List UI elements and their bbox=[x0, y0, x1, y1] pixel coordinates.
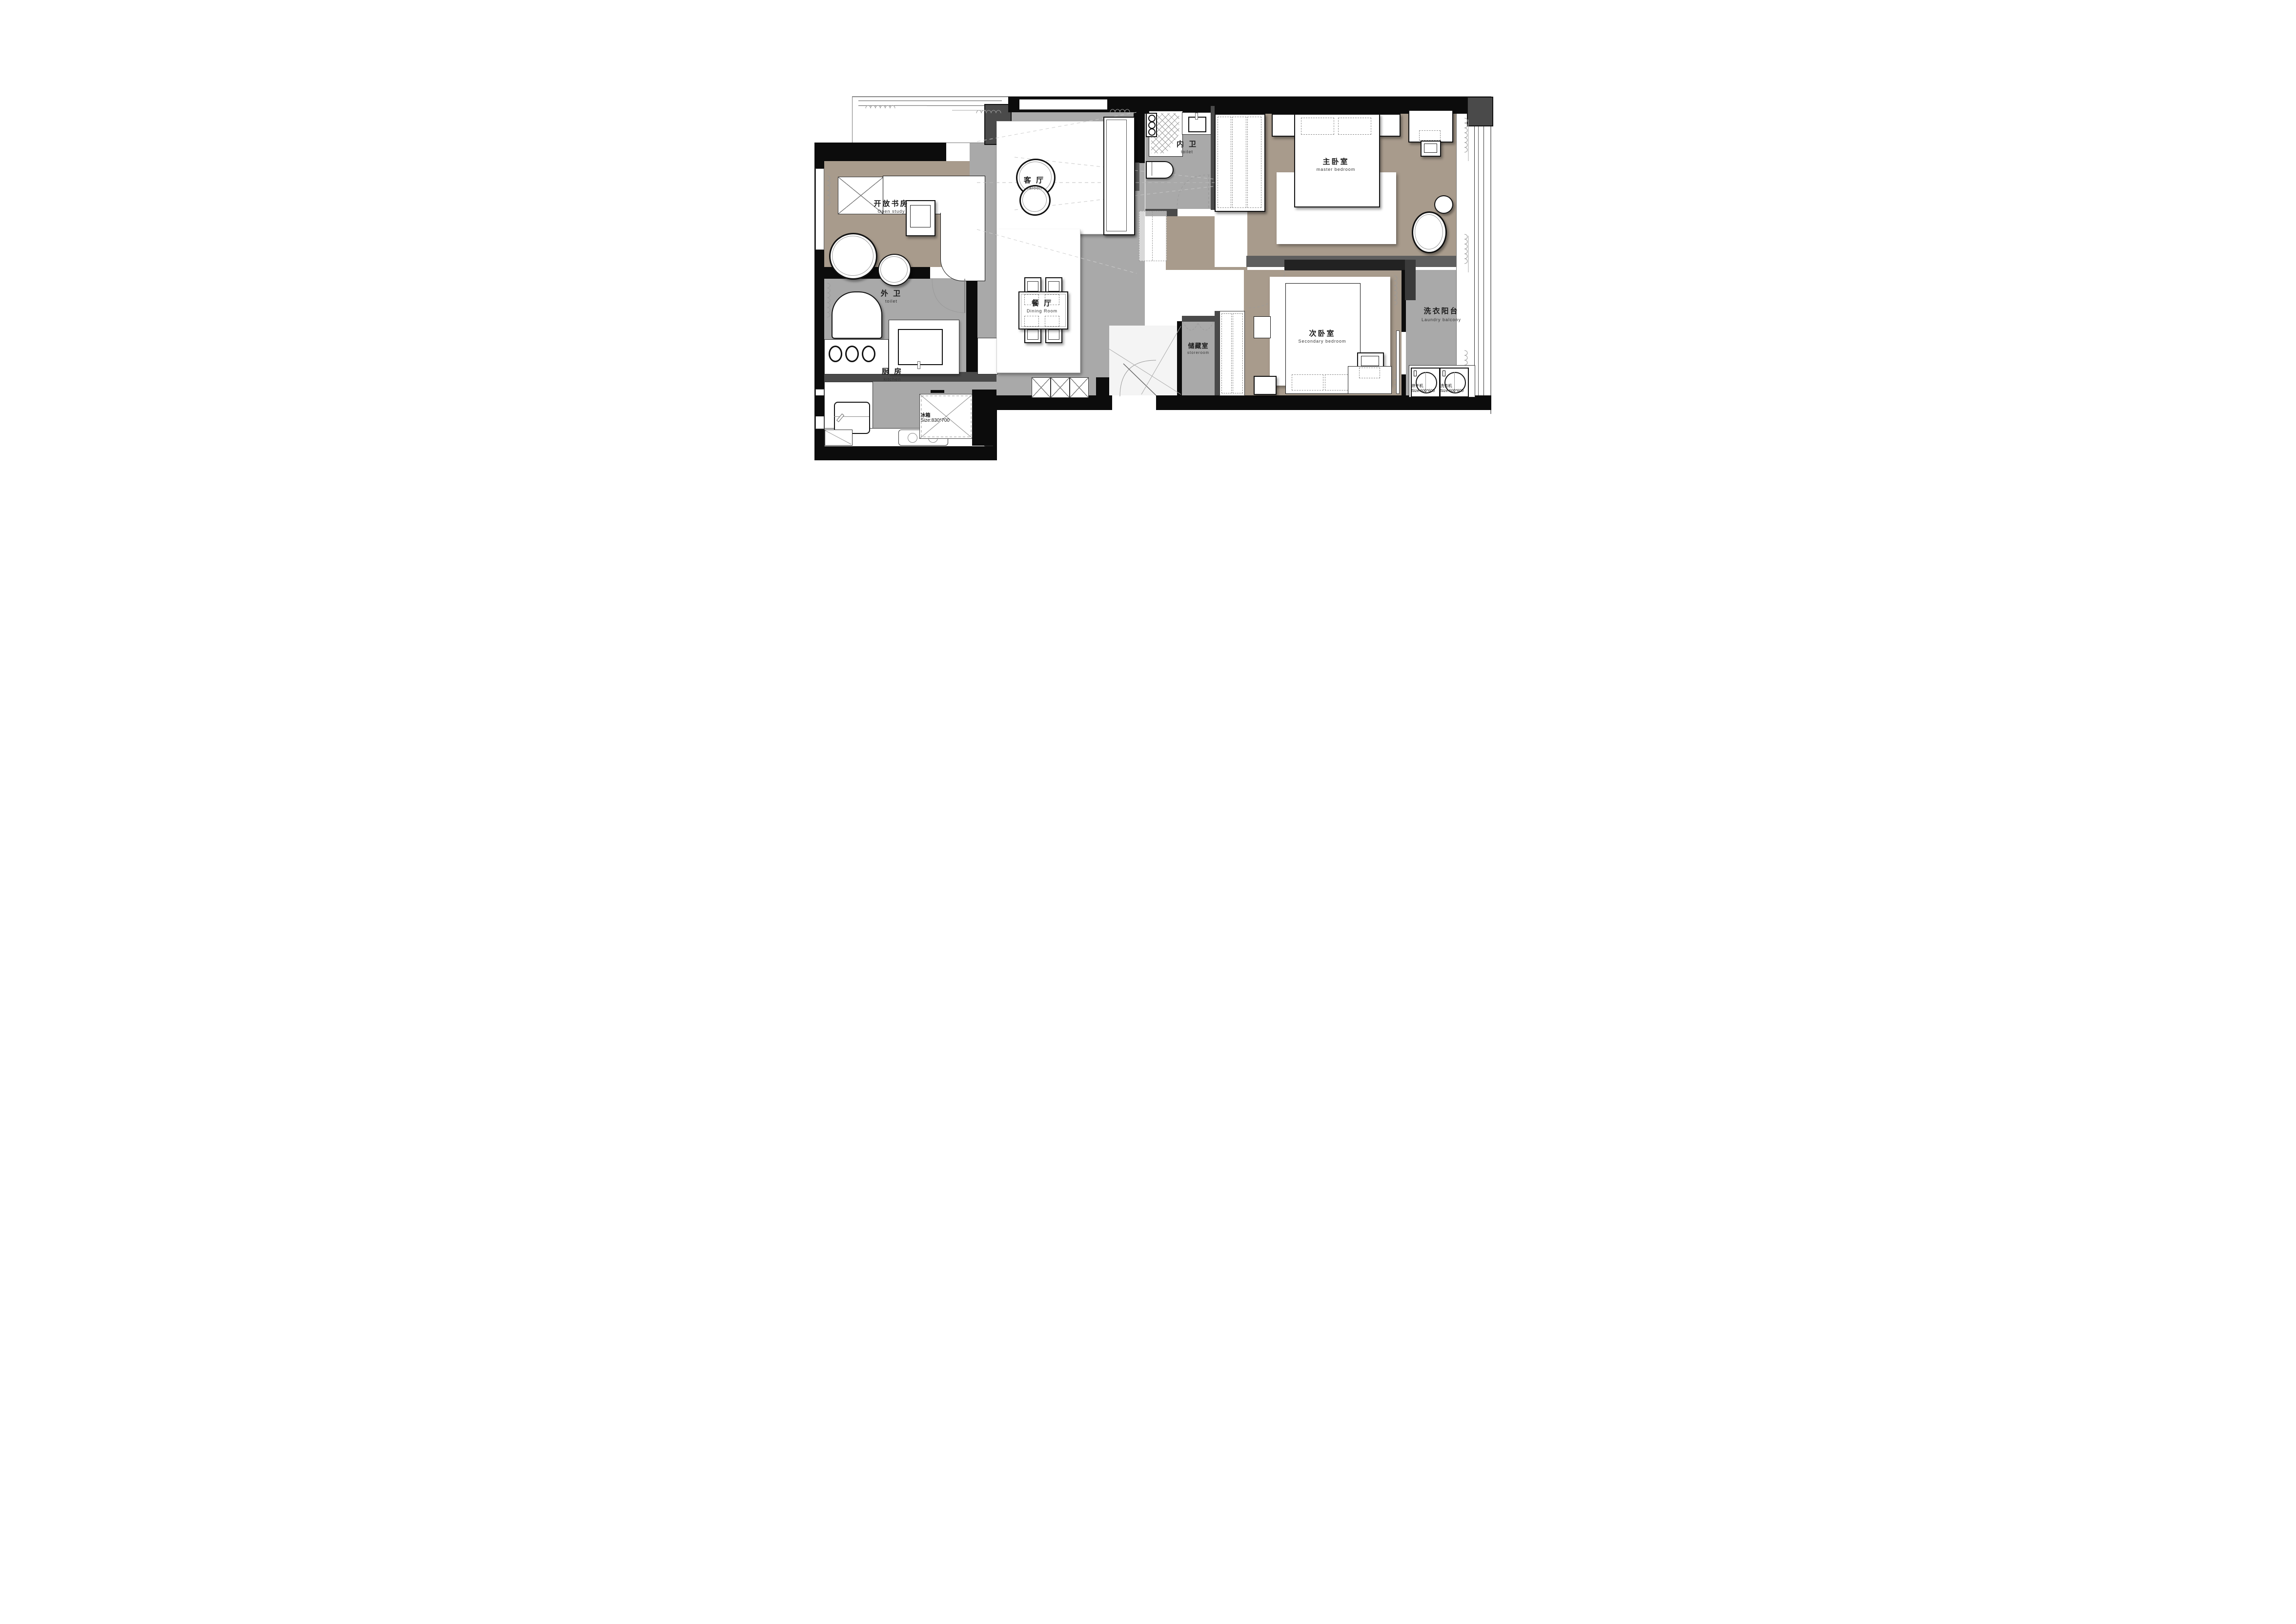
master-desk-stool bbox=[1421, 141, 1441, 157]
master-pouf-large bbox=[1412, 211, 1447, 253]
storeroom-right-wall bbox=[1215, 311, 1219, 395]
secondary-bedroom-label-cn: 次卧室 bbox=[1309, 328, 1335, 338]
laundry-top-pillar bbox=[1405, 260, 1416, 300]
sofa-back-wall bbox=[1134, 106, 1145, 163]
storeroom-label-en: storeroom bbox=[1187, 350, 1209, 355]
master-bedroom-label-en: master bedroom bbox=[1317, 167, 1356, 172]
entry-vestibule-floor bbox=[1109, 326, 1182, 395]
master-nightstand-right bbox=[1379, 114, 1401, 137]
storeroom-label-cn: 储藏室 bbox=[1188, 341, 1208, 350]
outer-toilet-label-cn: 外 卫 bbox=[881, 288, 902, 298]
secondary-desk bbox=[1348, 366, 1392, 394]
dining-room-label-en: Dining Room bbox=[1027, 308, 1057, 313]
open-study-label-cn: 开放书房 bbox=[874, 198, 909, 208]
fridge-label: 冰箱 bbox=[921, 411, 931, 418]
outer-toilet-right-wall bbox=[966, 267, 977, 378]
storeroom-floor bbox=[1182, 321, 1215, 395]
secondary-laundry-wall-bottom bbox=[1402, 374, 1406, 395]
laundry-door-leaf bbox=[1396, 330, 1400, 394]
entry-cabinet bbox=[1051, 377, 1070, 398]
outer-toilet-cabinet bbox=[977, 338, 998, 374]
plan-outer-boundary-right bbox=[1490, 97, 1491, 414]
fridge-size-label: Size:830*700 bbox=[921, 418, 950, 423]
outer-toilet-bowl bbox=[832, 291, 882, 339]
kitchen-bottom-wall bbox=[814, 446, 996, 460]
secondary-cabinet bbox=[1254, 316, 1271, 338]
study-desk-chair bbox=[906, 200, 935, 236]
study-pouf-large bbox=[829, 233, 877, 280]
chair-ghost bbox=[1024, 316, 1039, 327]
master-bedroom-label-cn: 主卧室 bbox=[1322, 156, 1349, 166]
living-top-window bbox=[1019, 99, 1107, 110]
sliding-door bbox=[1139, 211, 1167, 261]
kitchen-corner-cabinet bbox=[825, 430, 853, 446]
laundry-balcony-label-en: Laundry balcony bbox=[1422, 317, 1461, 322]
top-right-pillar bbox=[1467, 97, 1493, 126]
sofa bbox=[1103, 117, 1135, 235]
inner-toilet-bowl bbox=[1146, 161, 1174, 179]
storeroom-top-wall bbox=[1182, 316, 1215, 322]
inner-toilet-right-wall bbox=[1211, 106, 1215, 210]
master-nightstand-left bbox=[1272, 114, 1296, 137]
laundry-balcony-label-cn: 洗衣阳台 bbox=[1423, 306, 1459, 316]
entry-cabinet bbox=[1070, 377, 1089, 398]
study-top-wall bbox=[814, 143, 946, 161]
pillow bbox=[1292, 374, 1323, 391]
inner-toilet-basin bbox=[1182, 112, 1211, 135]
inner-toilet-label-cn: 内 卫 bbox=[1177, 139, 1198, 149]
entry-cabinet bbox=[1032, 377, 1051, 398]
saloon-label-cn: 客 厅 bbox=[1024, 175, 1045, 185]
master-closet bbox=[1215, 114, 1265, 212]
floor-plan: 冰箱 Size:830*700 bbox=[766, 0, 1531, 541]
study-pouf-small bbox=[878, 254, 911, 286]
secondary-top-wall bbox=[1284, 260, 1405, 270]
entry-side-wall bbox=[1096, 377, 1109, 397]
inner-toilet-vanity bbox=[1146, 113, 1157, 137]
kitchen-label-en: kitchen bbox=[884, 377, 901, 382]
master-desk bbox=[1408, 110, 1453, 143]
master-pouf-small bbox=[1434, 195, 1453, 214]
dryer-label: 烘干机 bbox=[1412, 383, 1423, 389]
study-desk-side bbox=[940, 213, 985, 281]
saloon-label-en: saloon bbox=[1026, 185, 1042, 190]
outer-toilet-label-en: toilet bbox=[885, 299, 897, 304]
dryer-size-label: Size:600*600 bbox=[1412, 389, 1435, 393]
south-wall-east bbox=[1156, 395, 1491, 410]
pillow bbox=[1338, 118, 1371, 135]
study-wardrobe bbox=[838, 177, 884, 214]
secondary-wardrobe bbox=[1219, 311, 1245, 396]
study-left-window bbox=[815, 168, 824, 250]
storeroom-left-wall bbox=[1177, 321, 1182, 395]
washer-label: 洗衣机 bbox=[1441, 383, 1452, 389]
balcony-window-centerline bbox=[1478, 104, 1479, 397]
pillow bbox=[1301, 118, 1334, 135]
kitchen-right-block bbox=[972, 390, 996, 446]
washer-size-label: Size:600*600 bbox=[1441, 389, 1464, 393]
fridge-top-tick bbox=[931, 390, 944, 393]
balcony-window bbox=[1474, 104, 1484, 397]
bay-window-glass bbox=[858, 101, 1002, 106]
secondary-nightstand bbox=[1254, 376, 1277, 395]
outer-toilet-counter bbox=[824, 339, 889, 374]
sofa-back-wall-lower bbox=[1135, 163, 1139, 191]
secondary-bedroom-label-en: Secondary bedroom bbox=[1298, 339, 1346, 344]
open-study-label-en: Open study bbox=[877, 209, 905, 214]
dining-room-label-cn: 餐 厅 bbox=[1032, 298, 1053, 308]
kitchen-label-cn: 厨 房 bbox=[882, 366, 903, 376]
chair-ghost bbox=[1045, 316, 1059, 327]
inner-toilet-label-en: toilet bbox=[1181, 149, 1193, 154]
